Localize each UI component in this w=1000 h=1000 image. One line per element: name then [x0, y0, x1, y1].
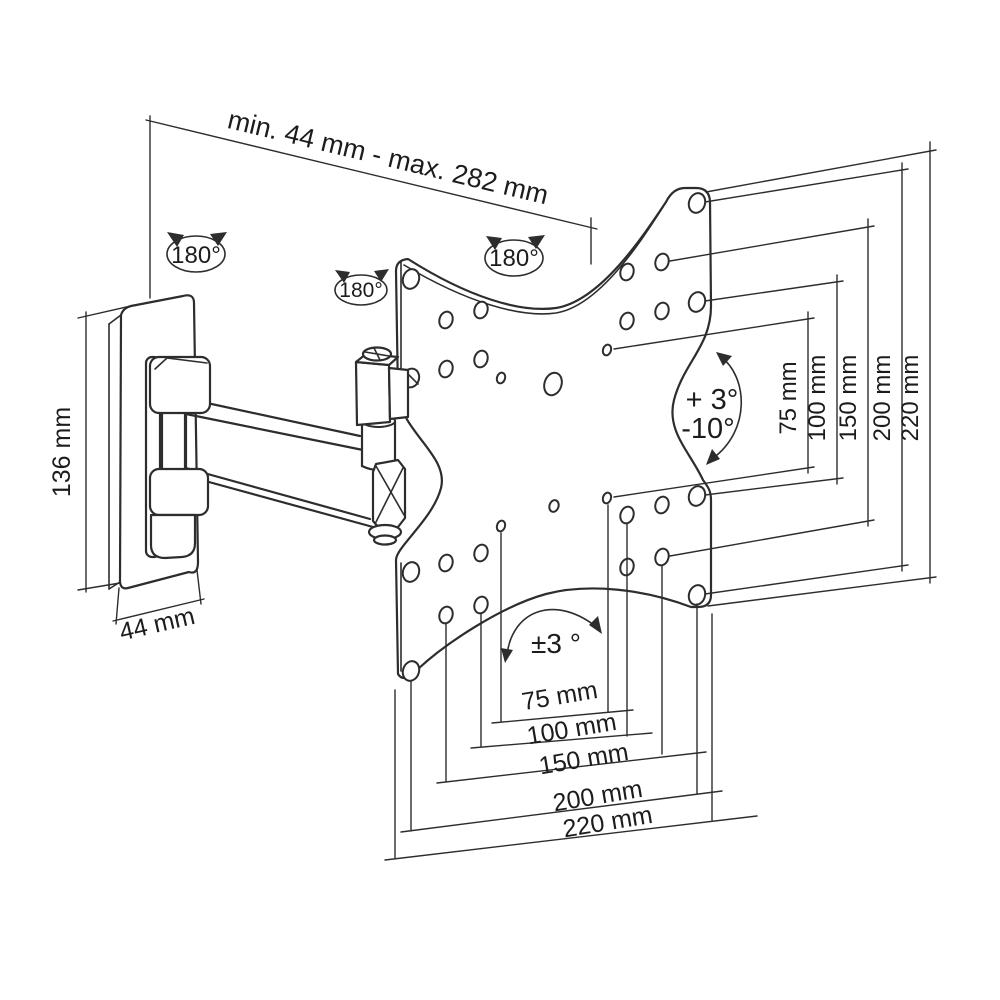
dim-label: 75 mm — [775, 361, 802, 434]
drawing-canvas: min. 44 mm - max. 282 mm 136 mm 44 mm 75… — [0, 0, 1000, 1000]
plate-bracket-front — [356, 362, 390, 425]
mounting-arm — [146, 348, 408, 559]
wall-bracket-lower-tab — [151, 515, 195, 558]
tilt-annotation: + 3° -10° — [681, 352, 741, 465]
tilt-down-label: -10° — [681, 413, 735, 445]
level-adjust-annotation: ±3 ° — [501, 610, 602, 663]
swivel-wall-annotation: 180° — [167, 232, 227, 272]
dim-label: 100 mm — [804, 355, 831, 442]
wall-plate-side-top — [109, 315, 121, 324]
dim-label: 75 mm — [520, 676, 600, 716]
ext-line — [197, 570, 201, 604]
wall-hinge-pin — [162, 413, 185, 474]
wall-knuckle-bottom — [150, 469, 208, 515]
swivel-arm-label: 180° — [339, 279, 382, 302]
dim-label: 220 mm — [897, 355, 924, 442]
tv-mount-technical-drawing: min. 44 mm - max. 282 mm 136 mm 44 mm 75… — [0, 0, 1000, 1000]
tilt-arrow-up — [716, 352, 732, 366]
elbow-foot-tip — [374, 536, 396, 545]
plate-bracket-wing — [389, 368, 408, 419]
swivel-wall-label: 180° — [171, 242, 221, 269]
swivel-plate-annotation: 180° — [485, 235, 545, 276]
top-dimension-label: min. 44 mm - max. 282 mm — [225, 104, 551, 210]
arm-bottom-edge — [186, 468, 370, 519]
level-adjust-label: ±3 ° — [531, 628, 581, 659]
swivel-arm-annotation: 180° — [335, 269, 389, 305]
level-arrow-right — [589, 616, 602, 634]
dim-line — [146, 120, 597, 229]
wall-height-label: 136 mm — [48, 407, 76, 497]
tilt-up-label: + 3° — [686, 384, 739, 416]
arm-bottom-face-edge — [187, 476, 373, 527]
level-arrow-left — [501, 648, 513, 663]
arm-top-back-edge — [193, 400, 360, 436]
swivel-plate-label: 180° — [489, 245, 539, 272]
dim-label: 200 mm — [869, 355, 896, 442]
tilt-arrow-down — [706, 449, 720, 465]
wall-width-label: 44 mm — [117, 602, 198, 646]
dim-label: 150 mm — [835, 355, 862, 442]
